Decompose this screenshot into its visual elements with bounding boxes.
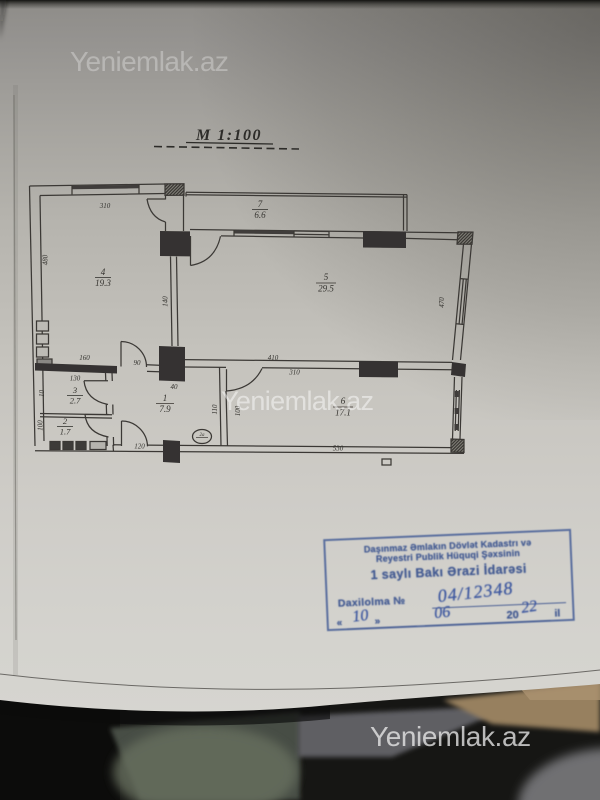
svg-text:1.7: 1.7 (60, 427, 71, 437)
svg-text:3: 3 (72, 385, 77, 395)
svg-text:M 1:100: M 1:100 (195, 127, 262, 144)
svg-text:40: 40 (171, 383, 179, 391)
svg-text:10: 10 (38, 390, 46, 398)
svg-text:310: 310 (288, 369, 300, 377)
svg-text:480: 480 (42, 254, 50, 265)
svg-text:120: 120 (134, 443, 145, 451)
svg-text:7: 7 (258, 199, 263, 209)
svg-text:1: 1 (163, 393, 168, 403)
svg-text:410: 410 (268, 354, 279, 362)
svg-text:19.3: 19.3 (95, 278, 111, 288)
svg-text:29.5: 29.5 (318, 284, 334, 294)
svg-text:5: 5 (324, 272, 329, 282)
svg-text:90: 90 (134, 359, 142, 367)
svg-text:310: 310 (99, 202, 111, 210)
svg-text:530: 530 (333, 445, 344, 453)
svg-text:470: 470 (438, 297, 446, 308)
svg-text:110: 110 (211, 404, 219, 414)
svg-text:2.7: 2.7 (70, 396, 81, 406)
svg-text:130: 130 (70, 375, 81, 383)
svg-text:6.6: 6.6 (254, 210, 266, 220)
svg-text:160: 160 (79, 354, 90, 362)
svg-text:2a: 2a (200, 433, 206, 438)
svg-text:7.9: 7.9 (159, 404, 171, 414)
svg-text:4: 4 (101, 267, 106, 277)
svg-text:140: 140 (162, 296, 170, 307)
svg-text:100: 100 (37, 420, 45, 431)
